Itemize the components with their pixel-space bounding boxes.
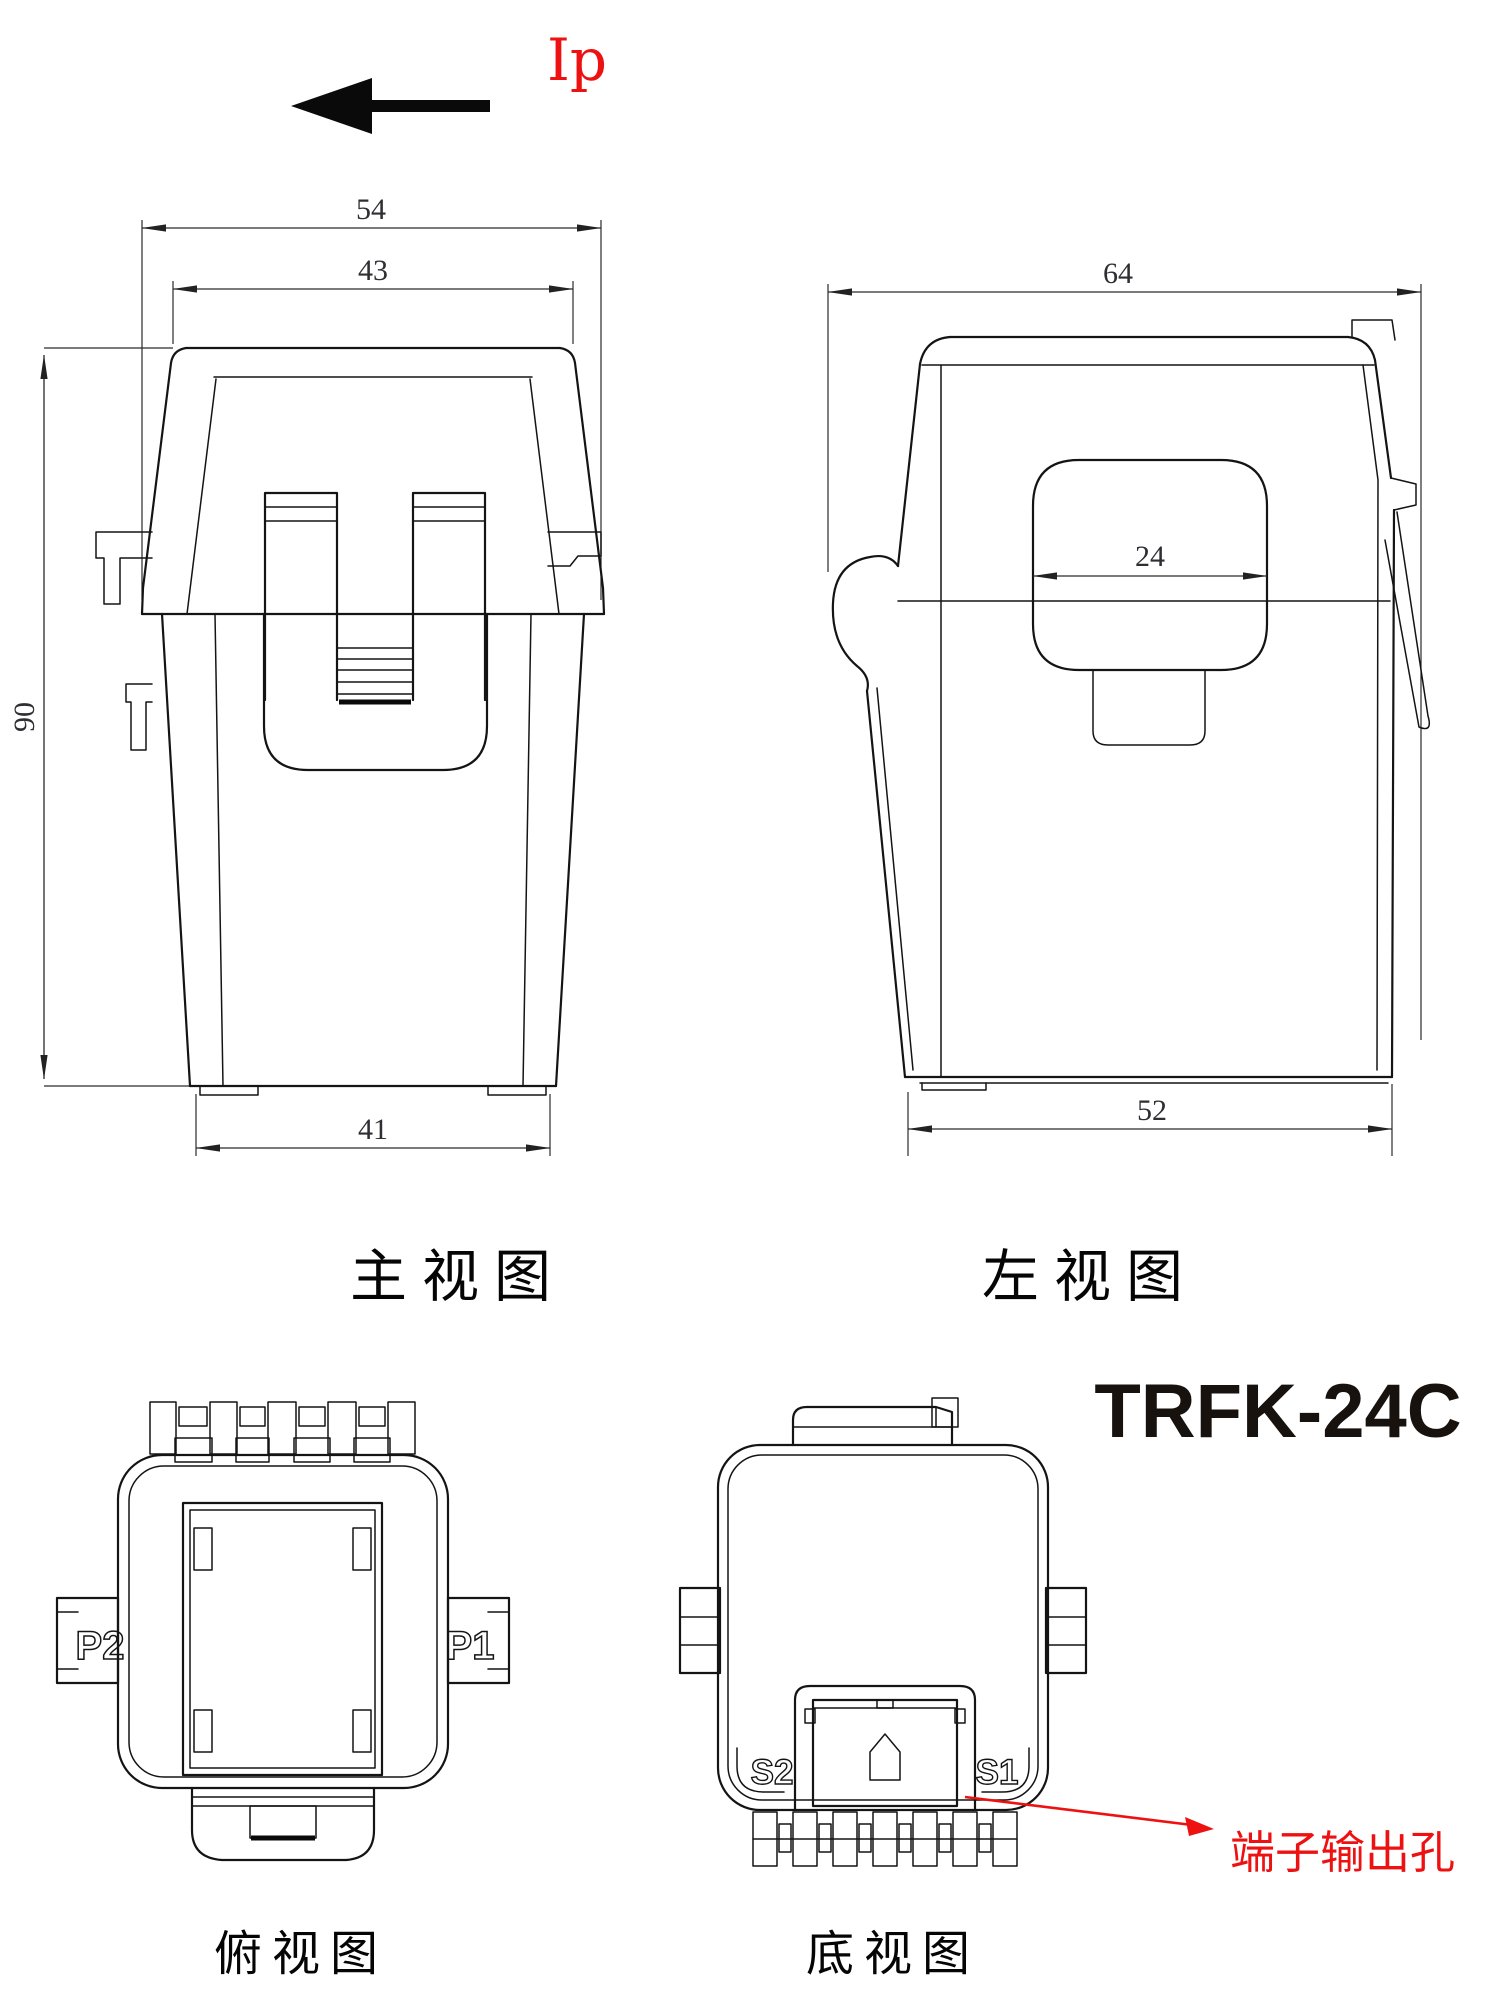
rib-tab	[359, 1407, 385, 1426]
body-inner-outline	[129, 1466, 437, 1777]
rib-fin	[268, 1402, 296, 1454]
terminal-s2-label: S2	[751, 1753, 794, 1792]
rib-fin	[328, 1402, 356, 1454]
prong-right-lines	[413, 507, 485, 521]
body-outline	[118, 1455, 448, 1788]
polarity-arrow-icon	[870, 1734, 900, 1780]
dim-41: 41	[358, 1113, 388, 1146]
foot-left	[200, 1086, 258, 1095]
cable-window	[264, 614, 487, 770]
front-view: 54 43 90 41	[8, 193, 604, 1310]
corner-slot	[353, 1528, 371, 1570]
latch-lever	[1385, 512, 1429, 729]
terminal-block-notch	[877, 1700, 893, 1708]
rib-tab-low	[294, 1438, 330, 1462]
terminal-ribs-bottom	[753, 1812, 1017, 1866]
dim-54: 54	[356, 193, 386, 226]
latch-finger-left	[126, 684, 152, 750]
body-side-right	[1375, 360, 1391, 478]
terminal-hole-annotation: 端子输出孔	[1230, 1826, 1455, 1879]
head-side-left	[142, 363, 171, 614]
bottom-view: S2 S1 端子输出孔 底视图	[680, 1398, 1455, 1982]
body-lower-left-inner	[877, 688, 913, 1070]
body-inner-outline	[728, 1455, 1038, 1800]
core-window	[183, 1503, 382, 1775]
window-stem	[1093, 670, 1205, 745]
body-inner-right	[1363, 365, 1378, 1070]
latch-tab-right	[548, 532, 601, 566]
latch-bump	[833, 556, 898, 691]
corner-slot	[194, 1528, 212, 1570]
head-inner-slant	[187, 379, 216, 614]
head-corner	[560, 348, 575, 363]
body-corner	[1348, 337, 1375, 360]
rib-fin	[150, 1402, 176, 1454]
prong-left	[265, 493, 337, 700]
top-step	[1352, 320, 1395, 340]
side-notch	[1391, 478, 1416, 510]
latch-tab-center	[250, 1806, 316, 1838]
side-tab-left	[680, 1588, 720, 1673]
technical-drawing: Ip 54 43 90 41	[0, 0, 1500, 2000]
dim-90: 90	[8, 702, 41, 732]
rib-tab-low	[175, 1438, 212, 1462]
rib-fin	[210, 1402, 237, 1454]
foot	[922, 1083, 986, 1090]
rib-tab	[179, 1407, 207, 1426]
body-side-left	[162, 614, 190, 1086]
corner-slot	[353, 1710, 371, 1752]
front-view-label: 主视图	[350, 1244, 566, 1310]
corner-slot	[194, 1710, 212, 1752]
rib-tab	[240, 1407, 265, 1426]
annotation-arrow-icon	[1185, 1817, 1214, 1836]
body-lower-left	[867, 691, 905, 1077]
core-window-inner	[190, 1510, 375, 1768]
side-tab-right-lines	[1046, 1617, 1086, 1645]
latch-tab-lines	[192, 1797, 374, 1806]
prong-right	[413, 493, 485, 700]
rib-tab	[299, 1407, 325, 1426]
terminal-p2-label: P2	[76, 1624, 125, 1668]
body-inner-line	[215, 614, 223, 1086]
head-corner	[171, 348, 186, 363]
model-number: TRFK-24C	[1094, 1369, 1461, 1454]
rib-tab	[979, 1824, 991, 1852]
top-view: P2 P1 俯视图	[57, 1402, 509, 1982]
rib-tab	[939, 1824, 951, 1852]
ip-arrow-icon	[291, 78, 490, 134]
foot-right	[488, 1086, 546, 1095]
body-side-left	[898, 364, 920, 566]
head-inner-slant	[530, 379, 559, 614]
terminal-p1-label: P1	[446, 1624, 495, 1668]
primary-current-arrow: Ip	[291, 26, 607, 134]
rib-tab-low	[354, 1438, 390, 1462]
ip-label: Ip	[547, 26, 607, 94]
left-view-label: 左视图	[982, 1244, 1198, 1310]
head-side-right	[575, 363, 604, 614]
side-tab-right	[1046, 1588, 1086, 1673]
rib-fin	[388, 1402, 415, 1454]
side-tab-left-lines	[680, 1617, 720, 1645]
body-corner	[920, 337, 950, 364]
bottom-view-label: 底视图	[806, 1926, 980, 1982]
dim-52: 52	[1137, 1094, 1167, 1127]
latch-tab	[192, 1788, 374, 1860]
rib-tab	[899, 1824, 911, 1852]
body-side-right	[556, 614, 584, 1086]
body-inner-line	[523, 614, 531, 1086]
drawing-sheet: Ip 54 43 90 41	[0, 0, 1500, 2000]
terminal-ribs	[150, 1402, 415, 1462]
terminal-block	[813, 1700, 957, 1806]
rib-tab	[859, 1824, 871, 1852]
terminal-recess	[795, 1686, 975, 1810]
rib-tab	[819, 1824, 831, 1852]
dim-24: 24	[1135, 540, 1165, 573]
rib-tab-low	[236, 1438, 269, 1462]
core-laminations	[338, 648, 412, 694]
rib-tab	[779, 1824, 791, 1852]
body-side-right-lower	[1392, 510, 1394, 1077]
latch-tab-top-lines	[793, 1407, 952, 1427]
terminal-s1-label: S1	[976, 1753, 1019, 1792]
dim-64: 64	[1103, 257, 1133, 290]
dim-43: 43	[358, 254, 388, 287]
latch-tab-top	[793, 1407, 952, 1445]
top-view-label: 俯视图	[214, 1926, 388, 1982]
prong-left-lines	[265, 507, 337, 521]
left-view: 64 52 24 左视图	[828, 257, 1429, 1310]
